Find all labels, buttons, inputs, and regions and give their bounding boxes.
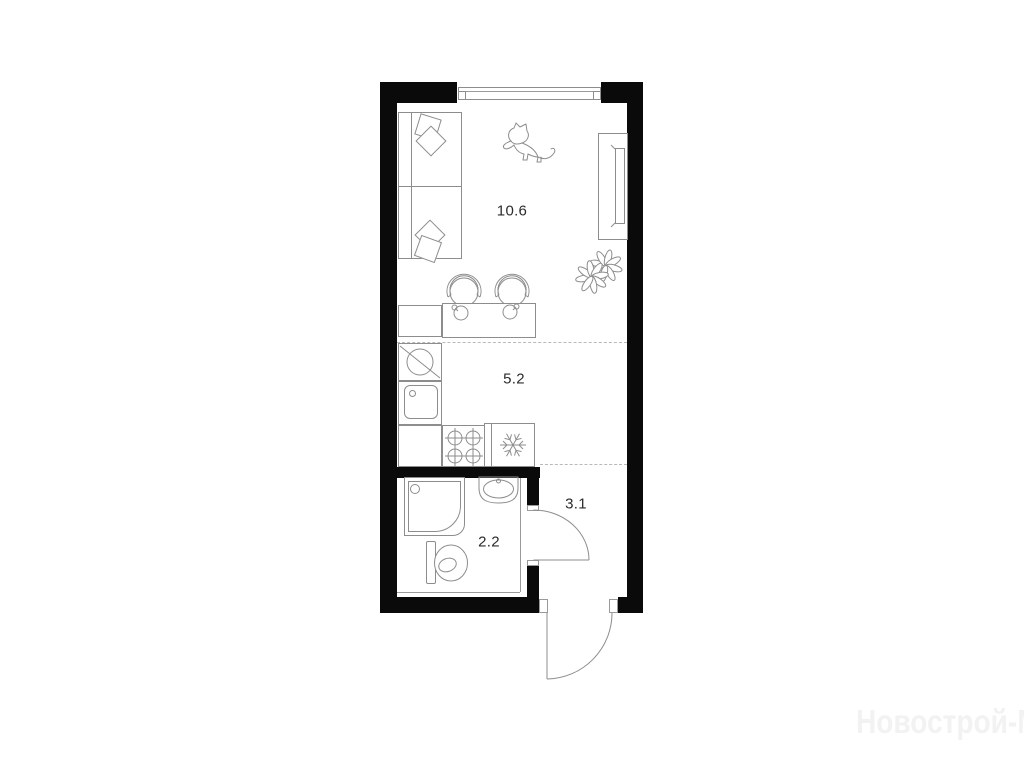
wall-bottom-right — [618, 597, 643, 613]
watermark: Новострой-М — [856, 703, 1024, 741]
washbasin — [477, 475, 520, 505]
washing-machine-icon — [398, 343, 442, 381]
wall-left — [380, 82, 397, 613]
bathroom-door — [533, 509, 591, 562]
shower-drain — [410, 484, 420, 494]
plant-drawing — [576, 250, 620, 294]
bathroom-inner-wall-line-h — [397, 592, 520, 593]
chair — [446, 268, 482, 308]
kitchen-counter-top — [398, 305, 442, 337]
floor-plan: 10.6 5.2 3.1 2.2 Новострой-М — [0, 0, 1024, 768]
chair — [494, 268, 530, 308]
zone-line-kitchen-hall — [540, 464, 627, 465]
entrance-door-jamb-right — [609, 599, 618, 613]
window-frame — [458, 87, 601, 100]
living-room-area-label: 10.6 — [497, 203, 527, 220]
window-end-cap-left — [458, 91, 466, 100]
bathroom-inner-wall-line-v — [520, 478, 521, 592]
cat-drawing — [498, 119, 560, 165]
wall-top-right — [601, 82, 643, 103]
stove-burners-icon — [442, 425, 486, 467]
window-mullion-line — [458, 91, 601, 92]
fridge-snowflake-icon — [491, 423, 535, 467]
tv-mount-ticks — [610, 144, 618, 228]
kitchen-sink-drain — [409, 390, 416, 397]
entrance-door — [546, 612, 613, 681]
wall-top-left — [380, 82, 457, 103]
wall-right — [627, 82, 643, 613]
cups-on-table — [450, 303, 520, 325]
window-end-cap-right — [593, 91, 601, 100]
toilet-bowl — [432, 543, 470, 583]
sofa-seat-divider — [398, 186, 462, 187]
wall-bottom-left — [380, 597, 539, 613]
bathroom-area-label: 2.2 — [478, 534, 500, 551]
entrance-door-jamb-left — [539, 599, 548, 613]
hallway-area-label: 3.1 — [565, 496, 587, 513]
kitchen-area-label: 5.2 — [503, 371, 525, 388]
kitchen-counter-bottom — [398, 425, 442, 467]
